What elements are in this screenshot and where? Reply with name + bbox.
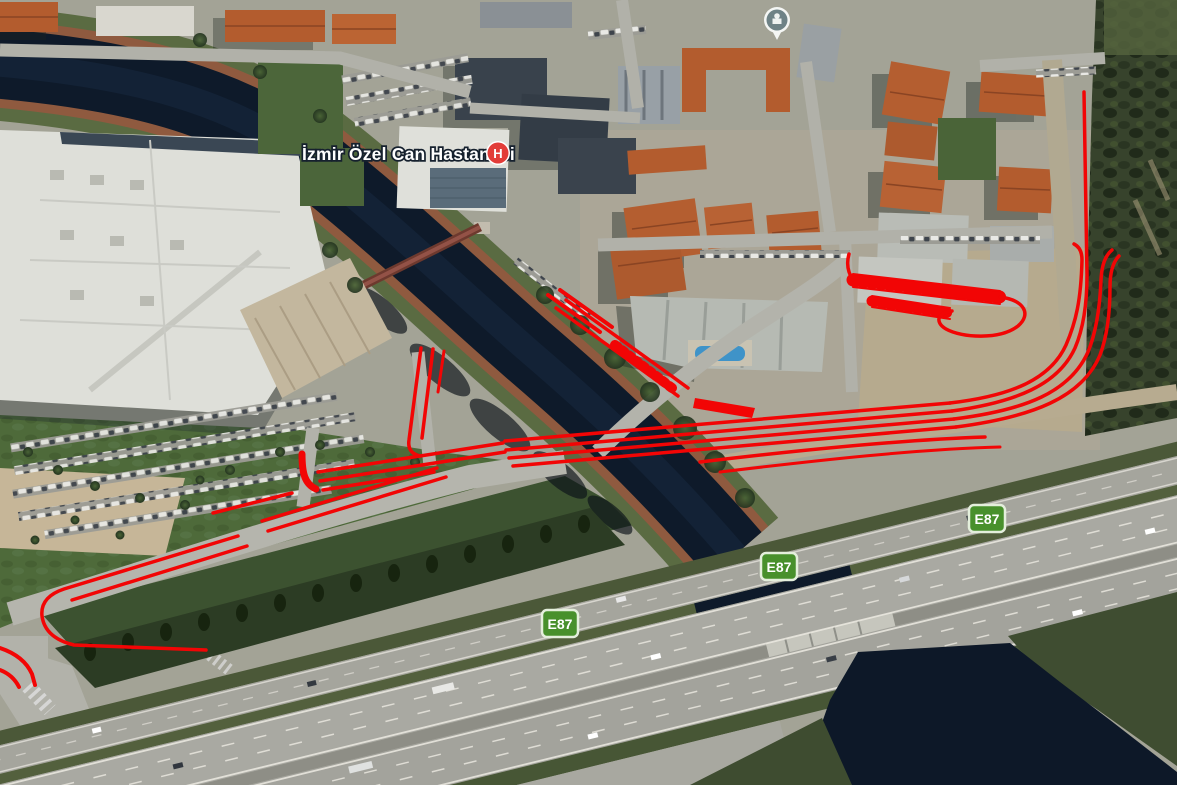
hospital-building [397,126,510,212]
shield-label: E87 [548,616,573,632]
route-shield-e87-3: E87 [542,610,578,637]
map-surface[interactable]: E87 E87 E87 İzmir Özel Can Hastanesi H [0,0,1177,785]
route-shield-e87-2: E87 [761,553,797,580]
scrubland [1085,0,1177,436]
hospital-label-text[interactable]: İzmir Özel Can Hastanesi [302,144,515,164]
satellite-map[interactable]: E87 E87 E87 İzmir Özel Can Hastanesi H [0,0,1177,785]
hospital-icon[interactable]: H [486,141,510,165]
shield-label: E87 [767,559,792,575]
shield-label: E87 [975,511,1000,527]
hospital-icon-letter: H [493,146,502,161]
route-shield-e87-1: E87 [969,505,1005,532]
hospital-label[interactable]: İzmir Özel Can Hastanesi H [302,141,515,165]
